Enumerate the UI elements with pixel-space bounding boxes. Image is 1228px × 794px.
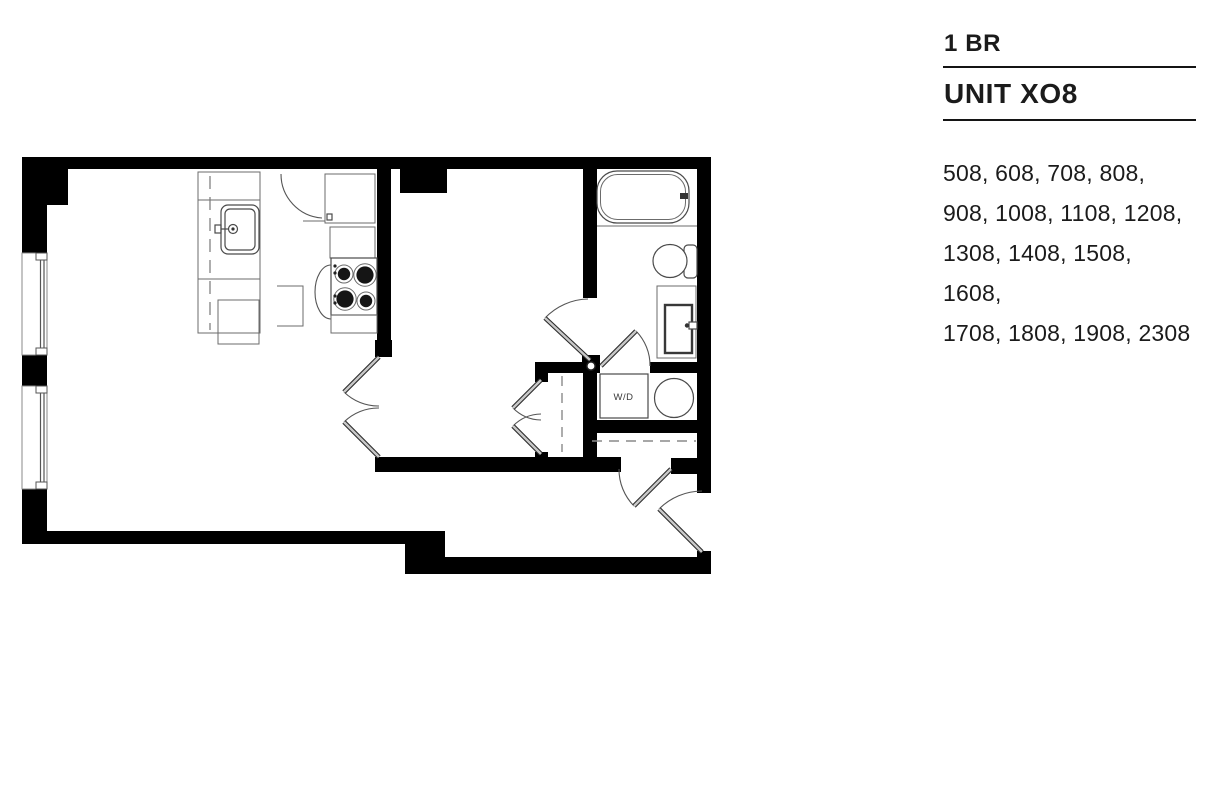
front-door	[659, 491, 702, 552]
bathroom	[597, 171, 697, 358]
oven-door-arc	[315, 265, 331, 319]
wall-block	[400, 157, 447, 193]
unit-numbers-line: 908, 1008, 1108, 1208,	[943, 193, 1196, 233]
floorplan-sheet: W/D	[0, 0, 1228, 794]
door-pivot-marker	[587, 362, 595, 370]
bedroom-french-doors	[344, 357, 379, 457]
unit-title: UNIT XO8	[944, 79, 1196, 109]
unit-numbers-list: 508, 608, 708, 808, 908, 1008, 1108, 120…	[943, 153, 1196, 353]
refrigerator	[281, 174, 375, 223]
toilet	[653, 245, 697, 279]
unit-numbers-line: 508, 608, 708, 808,	[943, 153, 1196, 193]
stove	[315, 258, 377, 319]
entry-closet-door	[619, 469, 671, 506]
closet-double-doors	[513, 380, 541, 454]
bedroom-hall-door	[545, 299, 590, 360]
info-panel: 1 BR UNIT XO8 508, 608, 708, 808, 908, 1…	[943, 32, 1196, 353]
divider-bottom	[943, 119, 1196, 121]
bathtub	[597, 171, 697, 226]
unit-numbers-line: 1708, 1808, 1908, 2308	[943, 313, 1196, 353]
counter-return	[277, 286, 303, 326]
bedroom-type-label: 1 BR	[944, 32, 1196, 56]
base-cabinet	[330, 227, 375, 258]
wd-label: W/D	[614, 392, 634, 403]
window-upper	[22, 253, 47, 355]
window-lower	[22, 386, 47, 489]
kitchen-sink	[215, 205, 259, 254]
unit-numbers-line: 1308, 1408, 1508, 1608,	[943, 233, 1196, 313]
kitchen-counter	[198, 172, 260, 333]
walls	[22, 157, 711, 574]
kitchen	[198, 172, 377, 344]
laundry-niche: W/D	[600, 374, 694, 418]
dryer-drum	[655, 379, 694, 418]
bathroom-door	[601, 331, 650, 366]
dishwasher	[218, 300, 259, 344]
divider-top	[943, 66, 1196, 68]
vanity-sink	[657, 286, 697, 358]
base-cabinet	[331, 315, 377, 333]
